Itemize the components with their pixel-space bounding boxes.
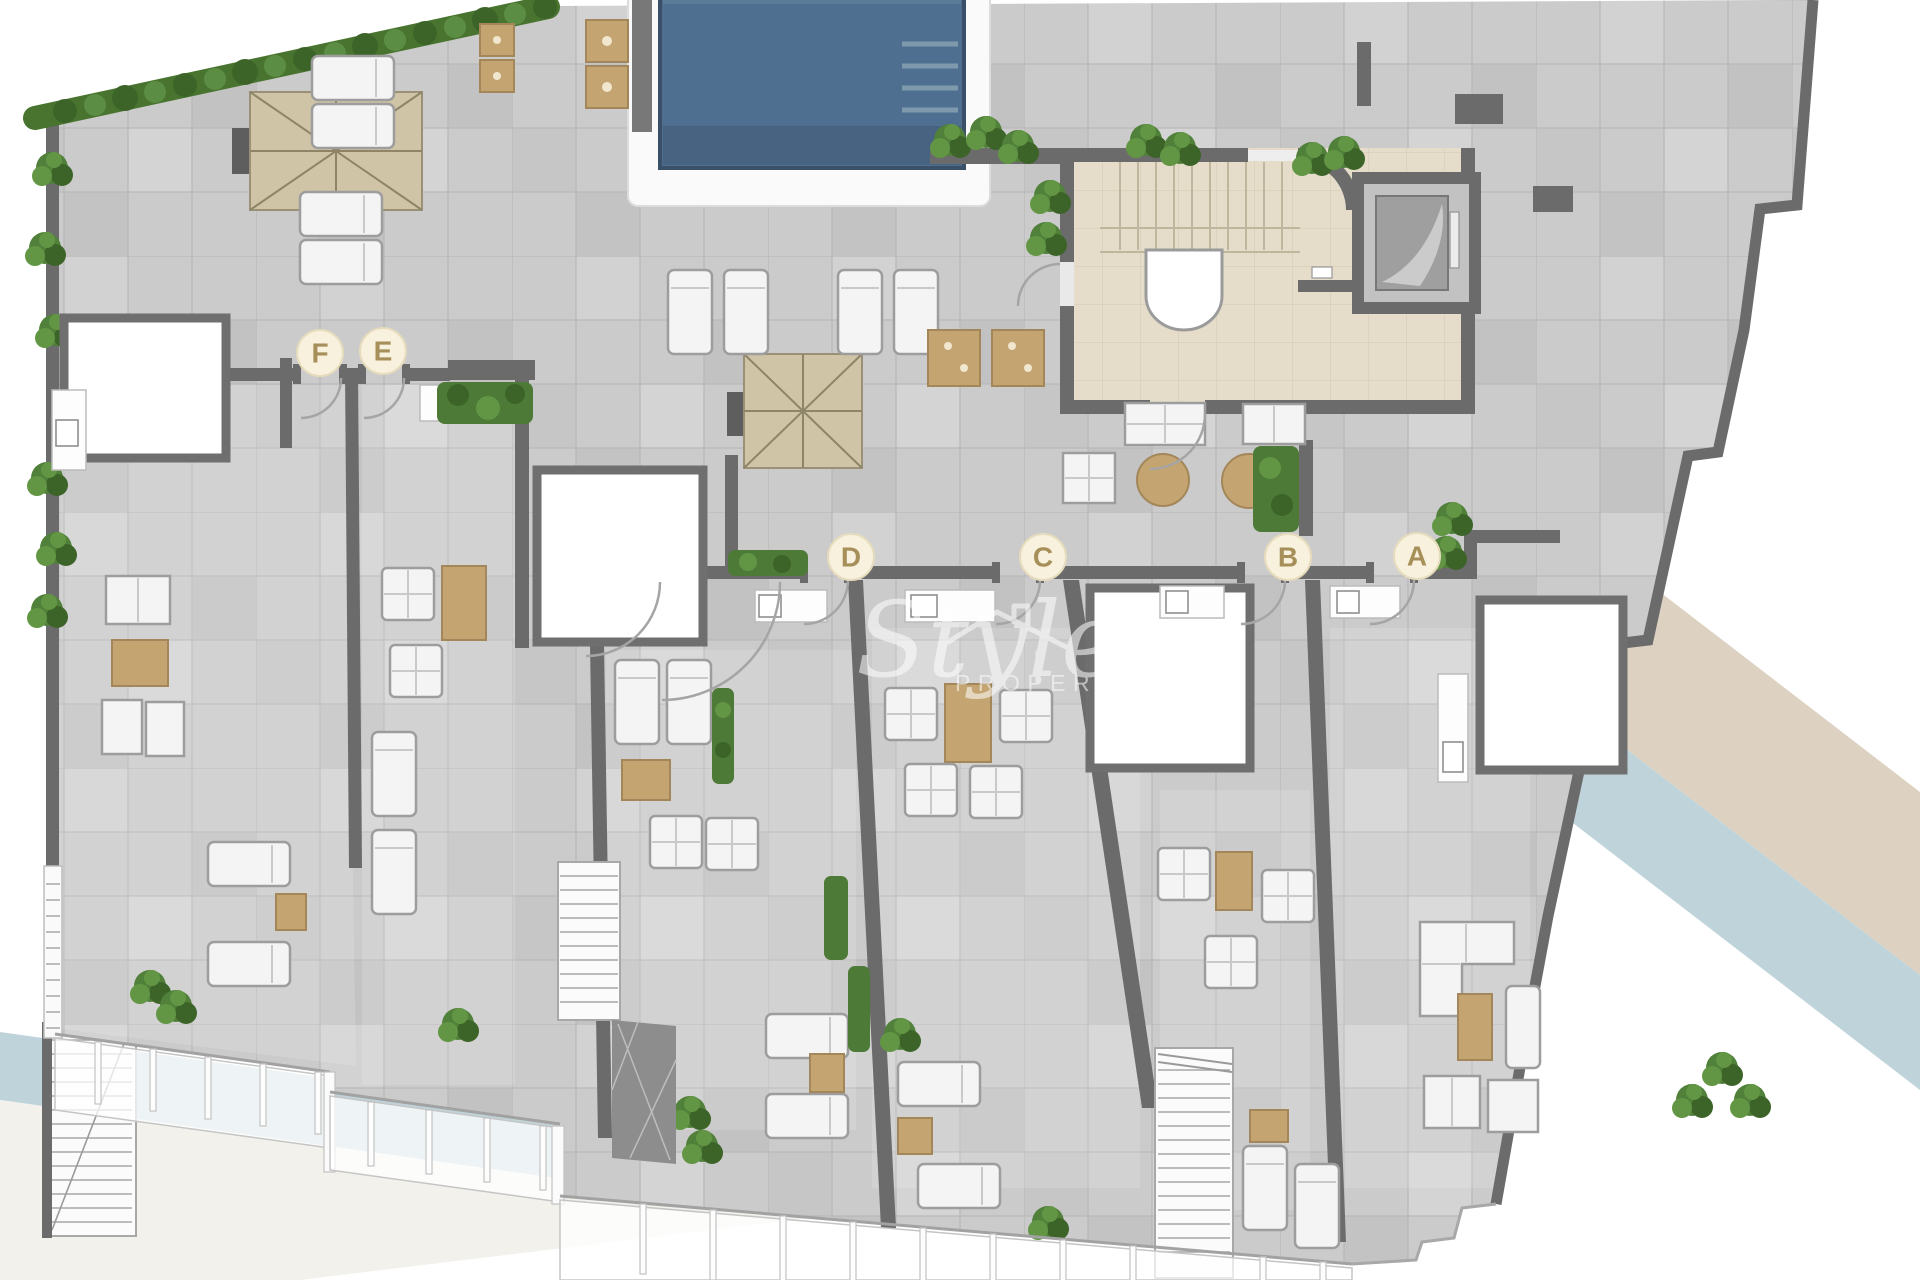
- round-pouf: [1137, 454, 1189, 506]
- cabinet-knob: [602, 36, 612, 46]
- sun-lounger: [838, 270, 882, 354]
- sun-lounger: [766, 1094, 848, 1138]
- armchair: [382, 568, 434, 620]
- label-letter: F: [311, 338, 328, 369]
- side-table: [276, 894, 306, 930]
- sun-lounger: [668, 270, 712, 354]
- side-table: [1250, 1110, 1288, 1142]
- umbrella-ribs: [744, 354, 862, 468]
- watermark-caption-text: PROPERTIES: [955, 670, 1178, 696]
- unit-label-f: F: [297, 330, 343, 376]
- pool-deep-end-shade: [663, 126, 961, 165]
- elevator-door: [1450, 212, 1459, 268]
- sun-lounger: [898, 1062, 980, 1106]
- cabinet-knob: [602, 82, 612, 92]
- sun-lounger: [300, 192, 382, 236]
- planter-box: [992, 330, 1044, 386]
- floor-plan-canvas: F E D C B A Style PROPERTIES: [0, 0, 1920, 1280]
- sun-lounger: [667, 660, 711, 744]
- pool-top-shade: [663, 0, 961, 4]
- core-fixture: [1312, 267, 1332, 278]
- umbrella-base: [232, 128, 250, 174]
- stair-run: [558, 862, 620, 1020]
- sun-lounger: [1506, 986, 1540, 1068]
- planter-box: [928, 330, 980, 386]
- coffee-table: [1216, 852, 1252, 910]
- armchair: [905, 764, 957, 816]
- elevator: [1358, 178, 1475, 308]
- coffee-table: [1458, 994, 1492, 1060]
- bench-dot: [493, 72, 501, 80]
- unit-label-c: C: [1020, 534, 1066, 580]
- armchair: [706, 818, 758, 870]
- armchair: [650, 816, 702, 868]
- coffee-table: [112, 640, 168, 686]
- label-letter: A: [1407, 541, 1427, 572]
- sun-lounger: [372, 732, 416, 816]
- armchair: [1158, 848, 1210, 900]
- stair-half-landing: [1146, 250, 1222, 330]
- wall-planter-b: [1299, 440, 1313, 536]
- pool-side-wall: [632, 0, 652, 132]
- skylight-box: [64, 318, 226, 458]
- core-wall-left-lower: [1060, 306, 1074, 414]
- side-table: [810, 1054, 844, 1092]
- stair-run: [1155, 1048, 1233, 1278]
- unit-label-b: B: [1265, 534, 1311, 580]
- floor-plan-page: F E D C B A Style PROPERTIES: [0, 0, 1920, 1280]
- umbrella-center: [727, 354, 862, 468]
- label-letter: E: [374, 336, 393, 367]
- wall-center-terrace: [725, 455, 738, 566]
- unit-label-a: A: [1394, 533, 1440, 579]
- sun-lounger: [1295, 1164, 1339, 1248]
- sun-lounger: [918, 1164, 1000, 1208]
- coffee-table: [622, 760, 670, 800]
- umbrella-base: [727, 392, 743, 436]
- sun-lounger: [312, 56, 394, 100]
- skylight-box: [1480, 600, 1623, 770]
- label-letter: B: [1278, 542, 1298, 573]
- sun-lounger: [208, 942, 290, 986]
- core-door-threshold: [1060, 262, 1074, 306]
- wall-stub-f: [280, 358, 292, 448]
- sun-lounger: [372, 830, 416, 914]
- sun-lounger: [724, 270, 768, 354]
- armchair: [390, 645, 442, 697]
- side-table: [898, 1118, 932, 1154]
- armchair: [970, 766, 1022, 818]
- armchair: [146, 702, 184, 756]
- railing-connector: [552, 1126, 564, 1204]
- sun-lounger: [208, 842, 290, 886]
- sun-lounger: [766, 1014, 848, 1058]
- unit-label-e: E: [360, 328, 406, 374]
- armchair: [1262, 870, 1314, 922]
- armchair: [1205, 936, 1257, 988]
- sun-lounger: [615, 660, 659, 744]
- core-threshold: [1248, 150, 1298, 161]
- armchair: [102, 700, 142, 754]
- planter-strip: [824, 876, 848, 960]
- bench-dot: [493, 36, 501, 44]
- coffee-table: [442, 566, 486, 640]
- label-letter: D: [841, 542, 861, 573]
- sun-lounger: [312, 104, 394, 148]
- sun-lounger: [300, 240, 382, 284]
- planter-strip: [848, 966, 870, 1052]
- unit-label-d: D: [828, 534, 874, 580]
- skylight-box: [537, 470, 703, 642]
- label-letter: C: [1033, 542, 1053, 573]
- armchair: [1488, 1080, 1538, 1132]
- stair-shaft-wall: [42, 1022, 52, 1238]
- sun-lounger: [1243, 1146, 1287, 1230]
